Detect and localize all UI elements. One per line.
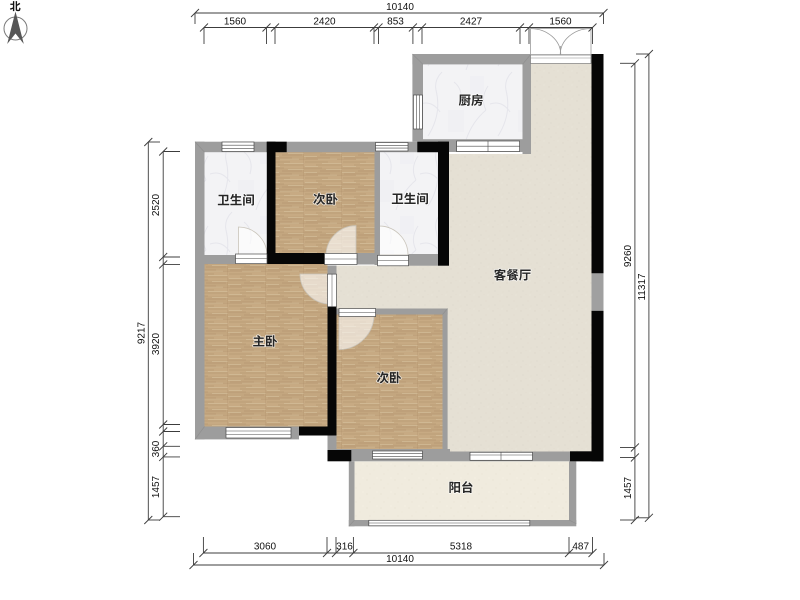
svg-text:2520: 2520 bbox=[151, 193, 162, 216]
svg-text:1560: 1560 bbox=[224, 17, 247, 28]
svg-text:5318: 5318 bbox=[450, 542, 473, 553]
svg-text:316: 316 bbox=[336, 542, 353, 553]
svg-text:487: 487 bbox=[572, 542, 589, 553]
svg-text:3060: 3060 bbox=[254, 542, 277, 553]
svg-text:9260: 9260 bbox=[623, 244, 634, 267]
svg-text:1457: 1457 bbox=[151, 475, 162, 498]
svg-text:1457: 1457 bbox=[623, 476, 634, 499]
svg-text:10140: 10140 bbox=[386, 554, 414, 565]
svg-text:3920: 3920 bbox=[151, 332, 162, 355]
svg-text:853: 853 bbox=[387, 17, 404, 28]
svg-text:9217: 9217 bbox=[137, 321, 148, 344]
svg-text:2427: 2427 bbox=[460, 17, 483, 28]
svg-text:10140: 10140 bbox=[386, 2, 414, 13]
svg-text:1560: 1560 bbox=[549, 17, 572, 28]
svg-text:360: 360 bbox=[151, 440, 162, 457]
svg-text:11317: 11317 bbox=[637, 273, 648, 301]
svg-text:2420: 2420 bbox=[313, 17, 336, 28]
